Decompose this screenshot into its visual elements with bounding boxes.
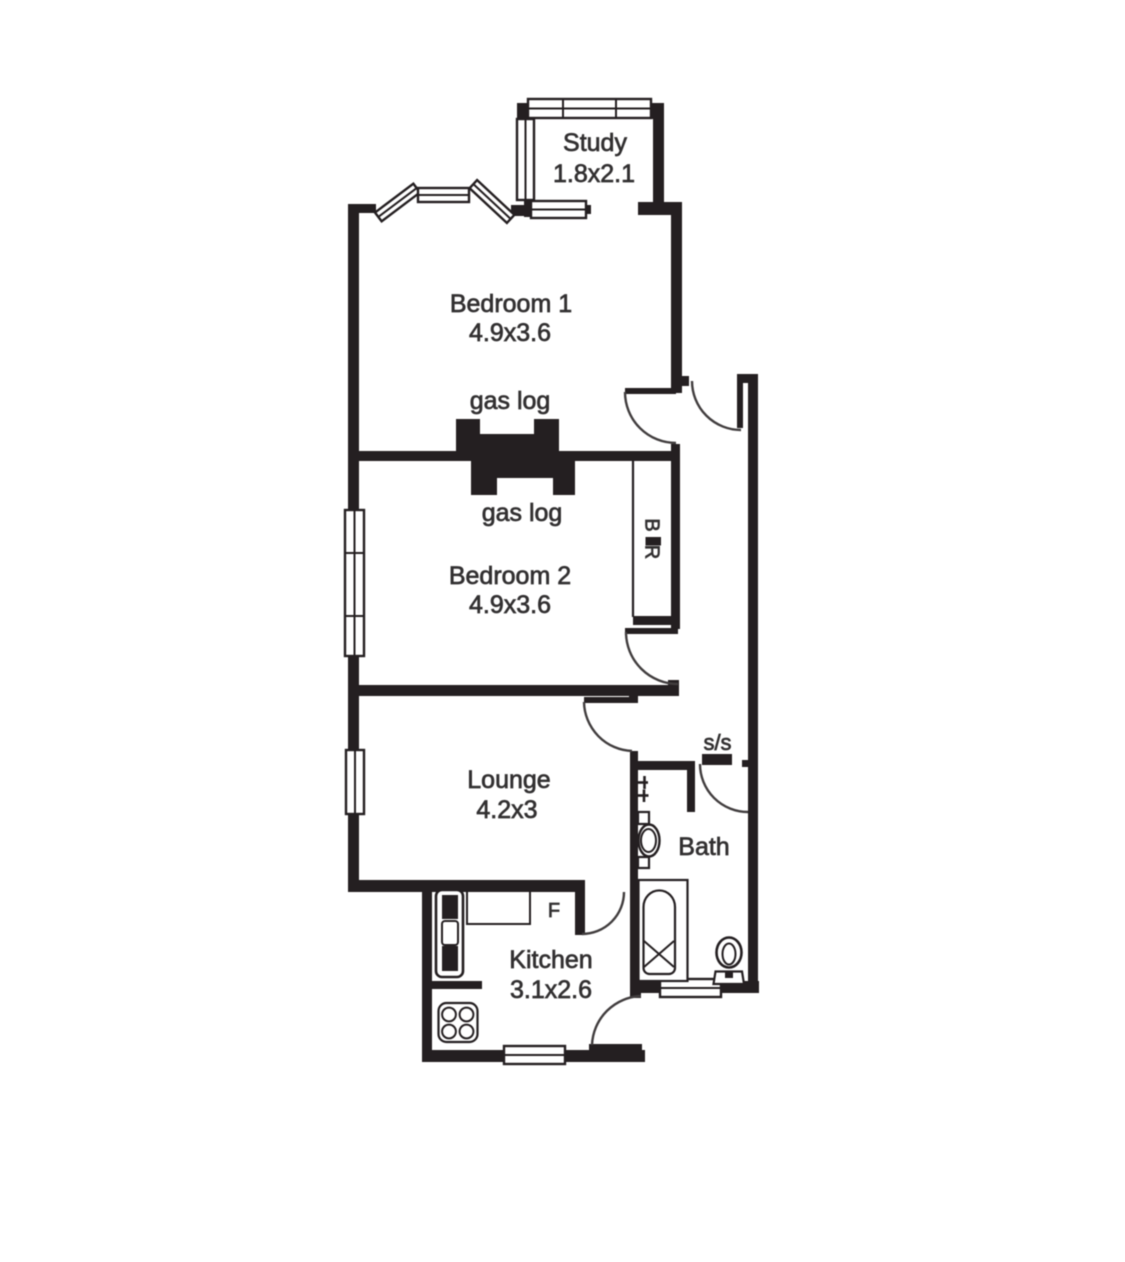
svg-text:R: R <box>641 545 663 559</box>
svg-text:4.2x3: 4.2x3 <box>476 796 537 824</box>
svg-text:F: F <box>548 900 560 922</box>
svg-text:Bedroom 1: Bedroom 1 <box>450 290 572 318</box>
svg-text:3.1x2.6: 3.1x2.6 <box>510 976 592 1004</box>
svg-text:4.9x3.6: 4.9x3.6 <box>469 591 551 619</box>
svg-text:s/s: s/s <box>703 730 731 755</box>
svg-text:gas log: gas log <box>482 499 563 527</box>
svg-text:Bedroom 2: Bedroom 2 <box>449 562 571 590</box>
svg-text:Lounge: Lounge <box>467 766 550 794</box>
svg-text:Bath: Bath <box>678 833 729 861</box>
svg-text:gas log: gas log <box>470 387 551 415</box>
svg-text:Study: Study <box>563 129 627 157</box>
svg-text:B: B <box>641 518 663 531</box>
svg-text:Kitchen: Kitchen <box>509 946 592 974</box>
svg-text:4.9x3.6: 4.9x3.6 <box>469 319 551 347</box>
svg-text:1.8x2.1: 1.8x2.1 <box>553 160 635 188</box>
